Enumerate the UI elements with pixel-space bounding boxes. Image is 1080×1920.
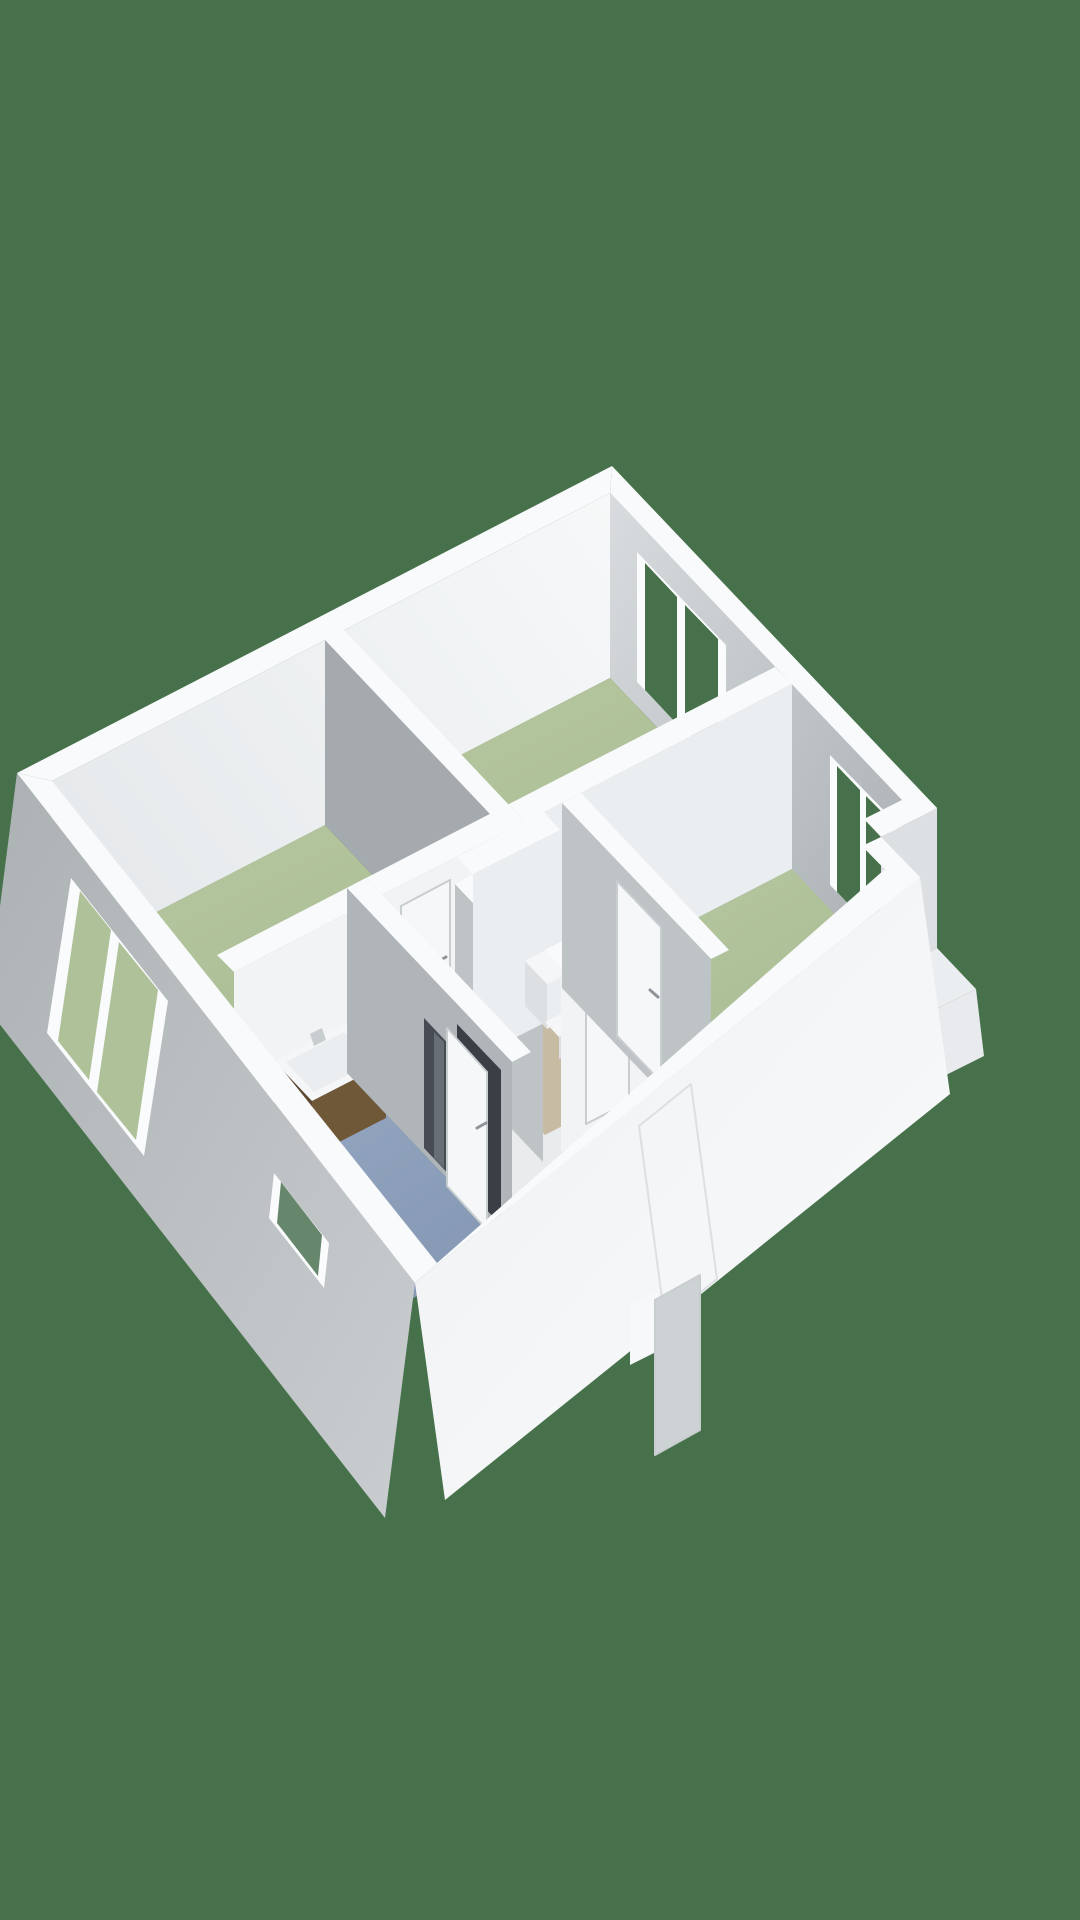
front-door-open-panel (655, 1275, 700, 1455)
floorplan-3d-render (0, 0, 1080, 1920)
floorplan-stage (0, 0, 1080, 1920)
window-bedroom-right-glass-left (837, 766, 860, 916)
shower-glass-highlight (434, 1032, 444, 1168)
